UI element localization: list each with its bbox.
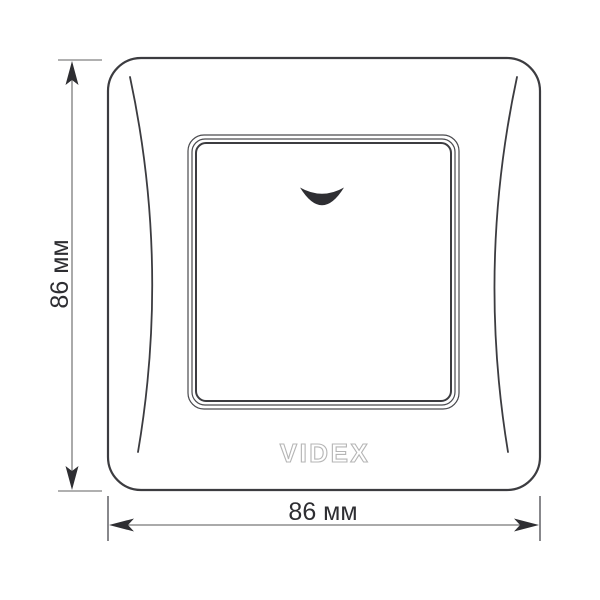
switch-key (196, 143, 451, 401)
width-dim-label: 86 мм (288, 498, 357, 526)
switch-dimension-drawing: VIDEX 86 мм 86 мм (0, 0, 600, 600)
height-dimension: 86 мм (46, 60, 102, 491)
dimension-diagram: VIDEX 86 мм 86 мм (0, 0, 600, 600)
height-dim-label: 86 мм (46, 239, 74, 308)
brand-logo: VIDEX (280, 438, 371, 468)
width-dimension: 86 мм (108, 496, 540, 541)
switch-plate: VIDEX (108, 58, 540, 490)
